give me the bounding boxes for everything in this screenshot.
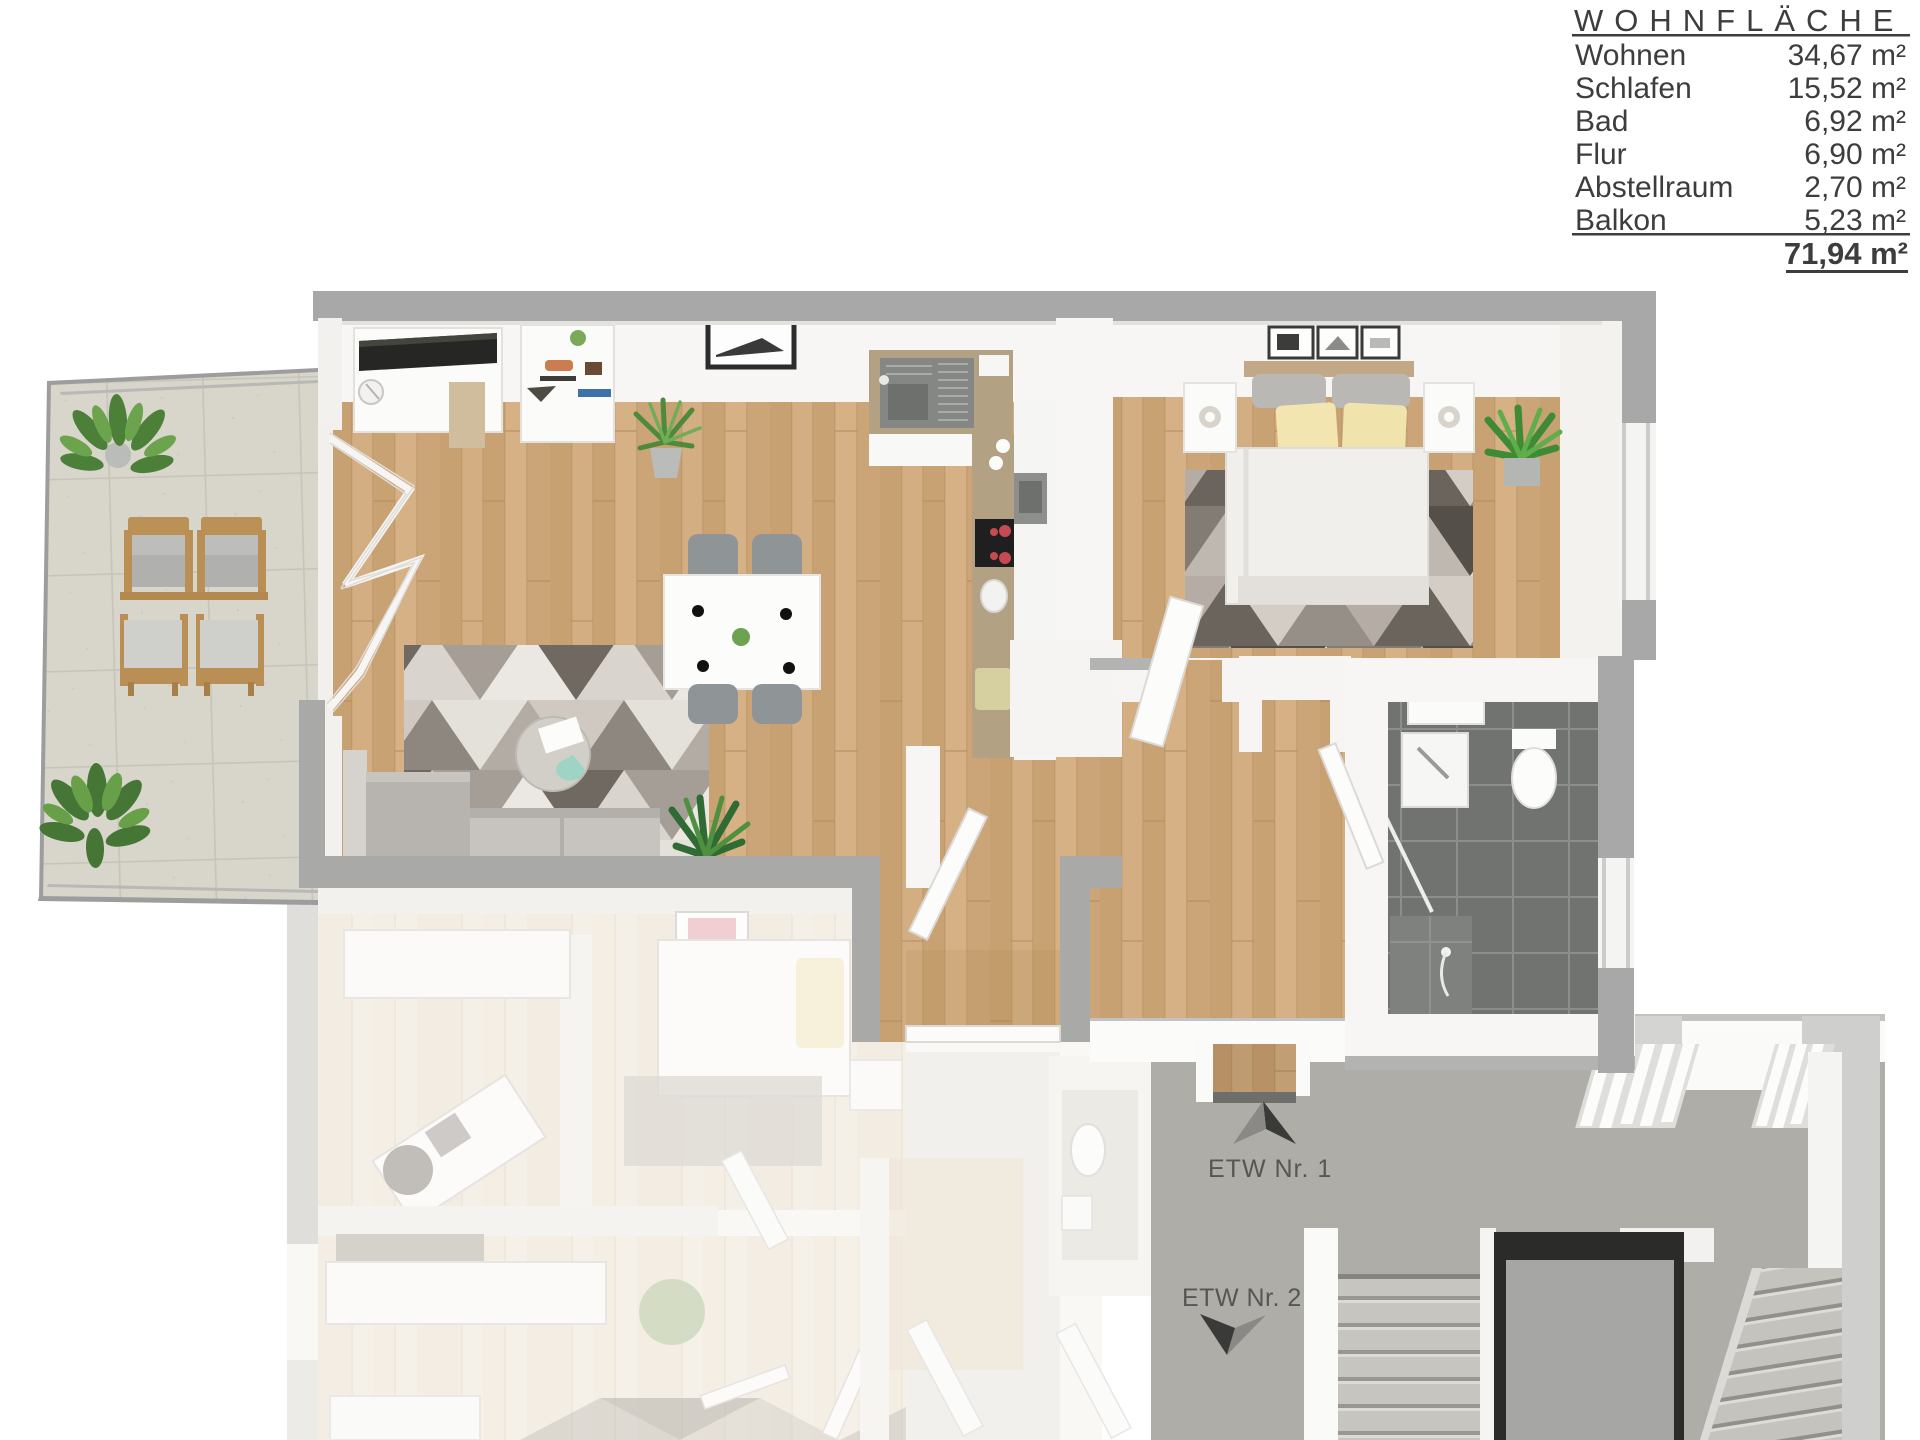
svg-text:Bad: Bad bbox=[1575, 105, 1628, 138]
svg-text:6,92 m²: 6,92 m² bbox=[1804, 105, 1906, 138]
svg-text:WOHNFLÄCHE: WOHNFLÄCHE bbox=[1574, 3, 1904, 38]
svg-text:2,70 m²: 2,70 m² bbox=[1804, 171, 1906, 204]
svg-text:5,23 m²: 5,23 m² bbox=[1804, 204, 1906, 237]
svg-text:ETW Nr. 2: ETW Nr. 2 bbox=[1182, 1284, 1302, 1312]
svg-text:6,90 m²: 6,90 m² bbox=[1804, 138, 1906, 171]
svg-text:Abstellraum: Abstellraum bbox=[1575, 171, 1733, 204]
svg-text:Wohnen: Wohnen bbox=[1575, 39, 1686, 72]
svg-text:71,94 m²: 71,94 m² bbox=[1784, 236, 1908, 271]
svg-text:Flur: Flur bbox=[1575, 138, 1627, 171]
svg-text:Schlafen: Schlafen bbox=[1575, 72, 1692, 105]
svg-text:Balkon: Balkon bbox=[1575, 204, 1667, 237]
svg-text:15,52 m²: 15,52 m² bbox=[1788, 72, 1906, 105]
svg-text:34,67 m²: 34,67 m² bbox=[1788, 39, 1906, 72]
svg-text:ETW Nr. 1: ETW Nr. 1 bbox=[1208, 1155, 1332, 1183]
